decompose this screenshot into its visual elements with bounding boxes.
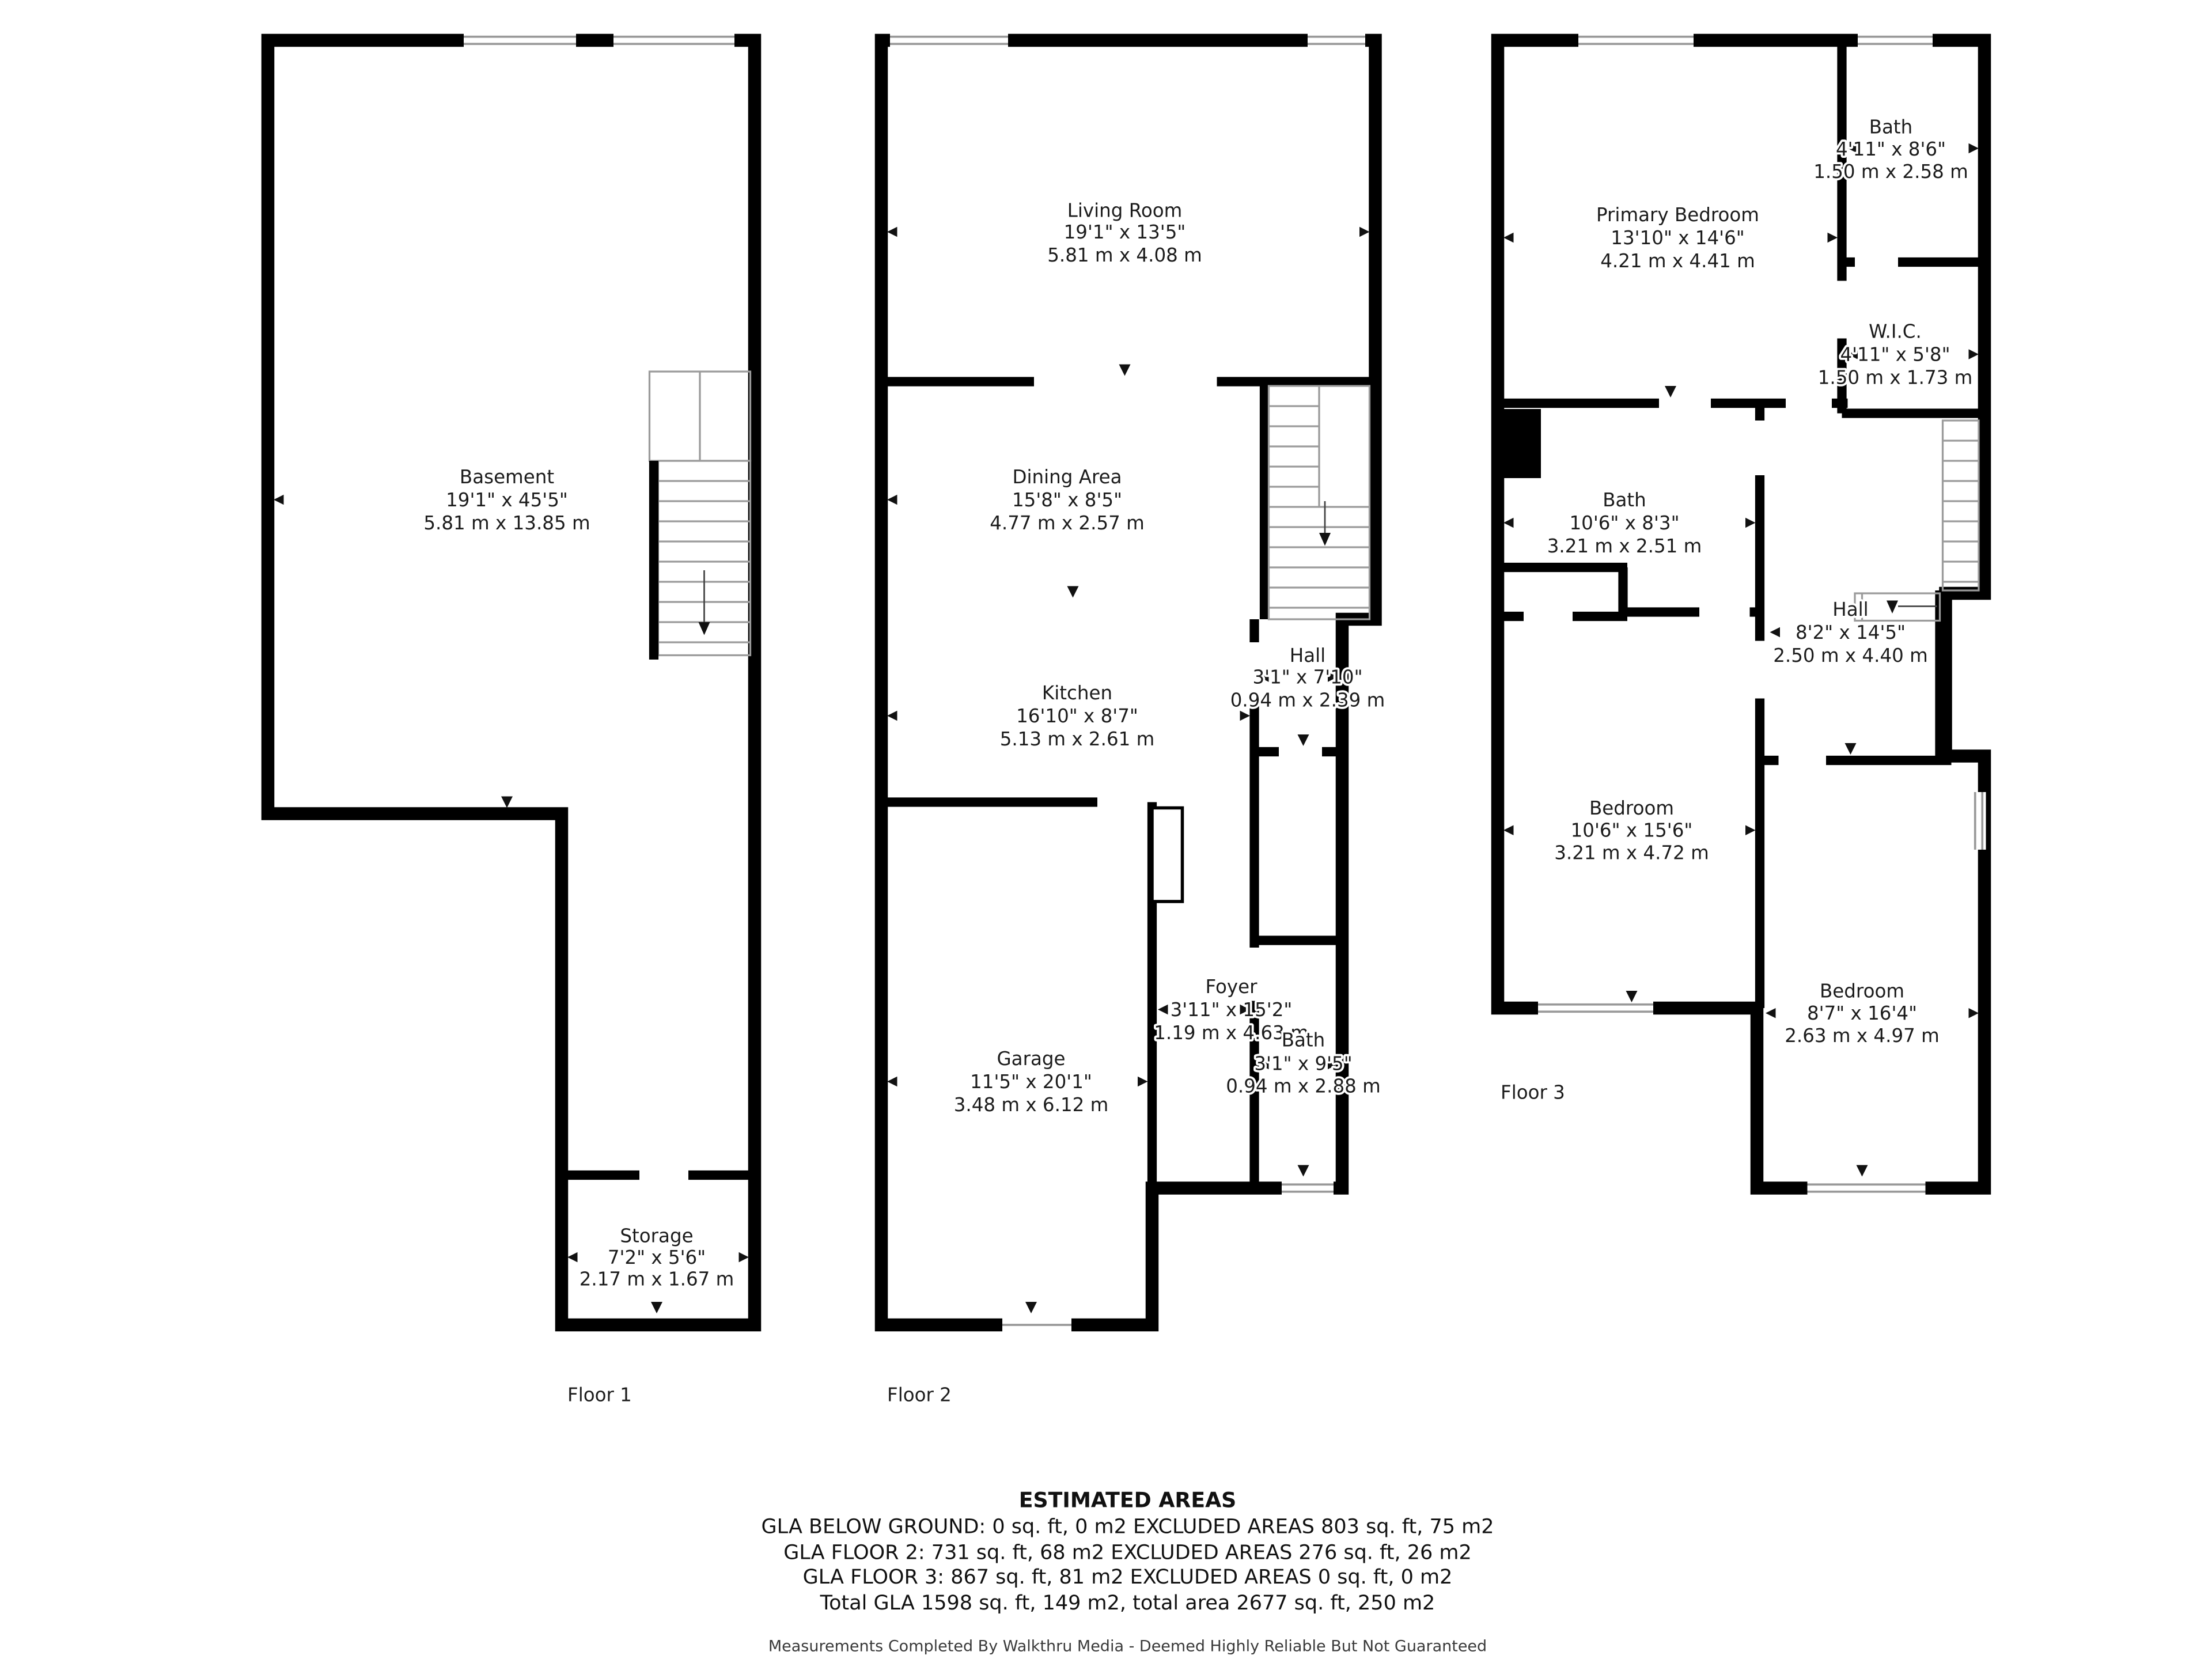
window-symbol <box>1858 33 1933 48</box>
room-label-storage: Storage 7'2" x 5'6" 2.17 m x 1.67 m <box>579 1225 734 1290</box>
svg-text:3'11" x 15'2": 3'11" x 15'2" <box>1171 999 1293 1021</box>
floor-plan-svg: Basement 19'1" x 45'5" 5.81 m x 13.85 m … <box>0 0 2212 1659</box>
room-label-dining-area: Dining Area 15'8" x 8'5" 4.77 m x 2.57 m <box>990 466 1145 534</box>
gla-below-ground-line: GLA BELOW GROUND: 0 sq. ft, 0 m2 EXCLUDE… <box>762 1515 1494 1538</box>
window-symbol <box>1808 1181 1926 1195</box>
floor3-plan: Bath 4'11" x 8'6" 1.50 m x 2.58 m Primar… <box>1498 33 1986 1196</box>
svg-text:Foyer: Foyer <box>1205 976 1257 998</box>
svg-text:Hall: Hall <box>1290 645 1325 666</box>
garage-door-opening <box>1002 1318 1071 1332</box>
room-label-living-room: Living Room 19'1" x 13'5" 5.81 m x 4.08 … <box>1047 199 1202 266</box>
svg-text:15'8" x 8'5": 15'8" x 8'5" <box>1012 489 1122 511</box>
svg-text:5.13 m x 2.61 m: 5.13 m x 2.61 m <box>1000 728 1155 750</box>
svg-text:4.21 m x 4.41 m: 4.21 m x 4.41 m <box>1600 250 1755 272</box>
window-symbol <box>1972 792 1986 850</box>
room-label-wic: W.I.C. 4'11" x 5'8" 1.50 m x 1.73 m <box>1818 320 1973 388</box>
svg-text:3.21 m x 4.72 m: 3.21 m x 4.72 m <box>1554 842 1709 863</box>
svg-text:3.48 m x 6.12 m: 3.48 m x 6.12 m <box>954 1094 1109 1116</box>
estimated-areas-block: ESTIMATED AREAS GLA BELOW GROUND: 0 sq. … <box>762 1487 1494 1655</box>
svg-text:16'10" x 8'7": 16'10" x 8'7" <box>1016 705 1138 727</box>
window-symbol <box>1578 33 1694 48</box>
room-label-kitchen: Kitchen 16'10" x 8'7" 5.13 m x 2.61 m <box>1000 682 1155 750</box>
room-label-bath-floor3-mid: Bath 10'6" x 8'3" 3.21 m x 2.51 m <box>1547 489 1702 557</box>
room-label-bath-floor3-top: Bath 4'11" x 8'6" 1.50 m x 2.58 m <box>1813 116 1968 183</box>
window-symbol <box>613 33 734 48</box>
svg-text:4.77 m x 2.57 m: 4.77 m x 2.57 m <box>990 512 1145 534</box>
svg-text:8'7" x 16'4": 8'7" x 16'4" <box>1807 1002 1917 1024</box>
svg-text:2.50 m x 4.40 m: 2.50 m x 4.40 m <box>1773 645 1928 666</box>
room-label-hall-floor3: Hall 8'2" x 14'5" 2.50 m x 4.40 m <box>1773 599 1928 666</box>
floor3-staircase <box>1855 421 1979 621</box>
svg-text:Bath: Bath <box>1282 1029 1325 1051</box>
svg-text:Kitchen: Kitchen <box>1042 682 1112 704</box>
svg-text:13'10" x 14'6": 13'10" x 14'6" <box>1611 227 1744 249</box>
svg-text:1.50 m x 1.73 m: 1.50 m x 1.73 m <box>1818 366 1973 388</box>
svg-text:2.17 m x 1.67 m: 2.17 m x 1.67 m <box>579 1268 734 1290</box>
svg-text:Primary Bedroom: Primary Bedroom <box>1596 204 1759 226</box>
floor2-plan: Living Room 19'1" x 13'5" 5.81 m x 4.08 … <box>881 33 1385 1406</box>
floor3-label: Floor 3 <box>1501 1082 1565 1104</box>
floor2-staircase <box>1269 386 1370 619</box>
svg-text:3'1" x 7'10": 3'1" x 7'10" <box>1252 666 1362 688</box>
disclaimer-text: Measurements Completed By Walkthru Media… <box>768 1637 1487 1655</box>
svg-text:3.21 m x 2.51 m: 3.21 m x 2.51 m <box>1547 535 1702 557</box>
svg-text:8'2" x 14'5": 8'2" x 14'5" <box>1796 622 1906 643</box>
floor1-outer-walls <box>268 40 755 1325</box>
dimension-arrows <box>887 227 1370 1313</box>
dimension-arrows <box>274 495 749 1313</box>
room-label-bedroom-left: Bedroom 10'6" x 15'6" 3.21 m x 4.72 m <box>1554 797 1709 864</box>
floor1-label: Floor 1 <box>567 1384 632 1406</box>
svg-text:5.81 m x 4.08 m: 5.81 m x 4.08 m <box>1047 244 1202 266</box>
shaft-block <box>1498 409 1541 478</box>
door-leaf-icon <box>1152 808 1183 902</box>
svg-text:Basement: Basement <box>460 466 554 488</box>
svg-text:3'1" x 9'5": 3'1" x 9'5" <box>1254 1053 1352 1075</box>
svg-text:4'11" x 8'6": 4'11" x 8'6" <box>1836 138 1946 160</box>
room-label-primary-bedroom: Primary Bedroom 13'10" x 14'6" 4.21 m x … <box>1596 204 1759 272</box>
gla-floor3-line: GLA FLOOR 3: 867 sq. ft, 81 m2 EXCLUDED … <box>803 1566 1453 1589</box>
svg-text:5.81 m x 13.85 m: 5.81 m x 13.85 m <box>423 512 590 534</box>
svg-text:10'6" x 15'6": 10'6" x 15'6" <box>1571 820 1693 842</box>
floor1-plan: Basement 19'1" x 45'5" 5.81 m x 13.85 m … <box>268 33 755 1406</box>
svg-text:Garage: Garage <box>997 1048 1065 1070</box>
window-symbol <box>890 33 1008 48</box>
room-label-basement: Basement 19'1" x 45'5" 5.81 m x 13.85 m <box>423 466 590 534</box>
svg-text:Dining Area: Dining Area <box>1012 466 1122 488</box>
svg-text:Bedroom: Bedroom <box>1820 980 1904 1002</box>
room-label-hall-floor2: Hall 3'1" x 7'10" 0.94 m x 2.39 m <box>1230 645 1385 711</box>
estimated-areas-title: ESTIMATED AREAS <box>1019 1487 1237 1512</box>
svg-text:7'2" x 5'6": 7'2" x 5'6" <box>608 1247 706 1268</box>
svg-text:W.I.C.: W.I.C. <box>1869 320 1922 342</box>
svg-text:Bedroom: Bedroom <box>1589 797 1674 819</box>
room-label-bedroom-right: Bedroom 8'7" x 16'4" 2.63 m x 4.97 m <box>1785 980 1940 1047</box>
room-label-garage: Garage 11'5" x 20'1" 3.48 m x 6.12 m <box>954 1048 1109 1116</box>
floor2-label: Floor 2 <box>887 1384 952 1406</box>
svg-text:0.94 m x 2.88 m: 0.94 m x 2.88 m <box>1226 1075 1381 1097</box>
gla-floor2-line: GLA FLOOR 2: 731 sq. ft, 68 m2 EXCLUDED … <box>783 1541 1472 1564</box>
total-gla-line: Total GLA 1598 sq. ft, 149 m2, total are… <box>820 1592 1435 1615</box>
floor1-staircase <box>650 372 751 660</box>
svg-text:Hall: Hall <box>1832 599 1868 620</box>
svg-text:Storage: Storage <box>620 1225 693 1247</box>
svg-text:19'1" x 13'5": 19'1" x 13'5" <box>1064 221 1186 243</box>
window-symbol <box>464 33 576 48</box>
svg-text:1.50 m x 2.58 m: 1.50 m x 2.58 m <box>1813 161 1968 183</box>
svg-text:10'6" x 8'3": 10'6" x 8'3" <box>1569 512 1679 534</box>
svg-text:0.94 m x 2.39 m: 0.94 m x 2.39 m <box>1230 689 1385 711</box>
svg-text:11'5" x 20'1": 11'5" x 20'1" <box>970 1071 1092 1093</box>
svg-text:Bath: Bath <box>1603 489 1646 511</box>
svg-text:4'11" x 5'8": 4'11" x 5'8" <box>1840 343 1950 365</box>
window-symbol <box>1538 1001 1653 1016</box>
window-symbol <box>1282 1181 1334 1195</box>
svg-text:Living Room: Living Room <box>1067 199 1183 221</box>
window-symbol <box>1308 33 1365 48</box>
svg-text:Bath: Bath <box>1869 116 1913 138</box>
svg-text:19'1" x 45'5": 19'1" x 45'5" <box>446 489 568 511</box>
svg-text:2.63 m x 4.97 m: 2.63 m x 4.97 m <box>1785 1025 1940 1047</box>
